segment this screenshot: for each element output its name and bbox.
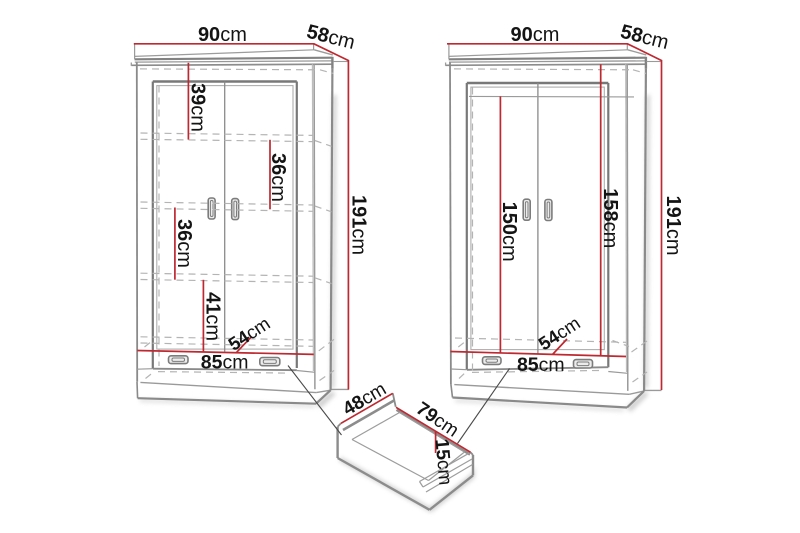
svg-text:191cm: 191cm bbox=[662, 195, 684, 255]
svg-text:191cm: 191cm bbox=[347, 195, 369, 255]
svg-text:150cm: 150cm bbox=[498, 202, 520, 262]
svg-text:36cm: 36cm bbox=[267, 153, 289, 202]
svg-text:15cm: 15cm bbox=[431, 438, 456, 486]
svg-text:90cm: 90cm bbox=[511, 24, 560, 46]
svg-text:158cm: 158cm bbox=[599, 188, 621, 248]
svg-text:39cm: 39cm bbox=[186, 83, 208, 132]
svg-text:85cm: 85cm bbox=[517, 354, 565, 376]
svg-text:85cm: 85cm bbox=[201, 352, 249, 374]
svg-text:41cm: 41cm bbox=[202, 292, 224, 341]
svg-text:90cm: 90cm bbox=[198, 24, 247, 46]
svg-text:36cm: 36cm bbox=[173, 219, 195, 268]
